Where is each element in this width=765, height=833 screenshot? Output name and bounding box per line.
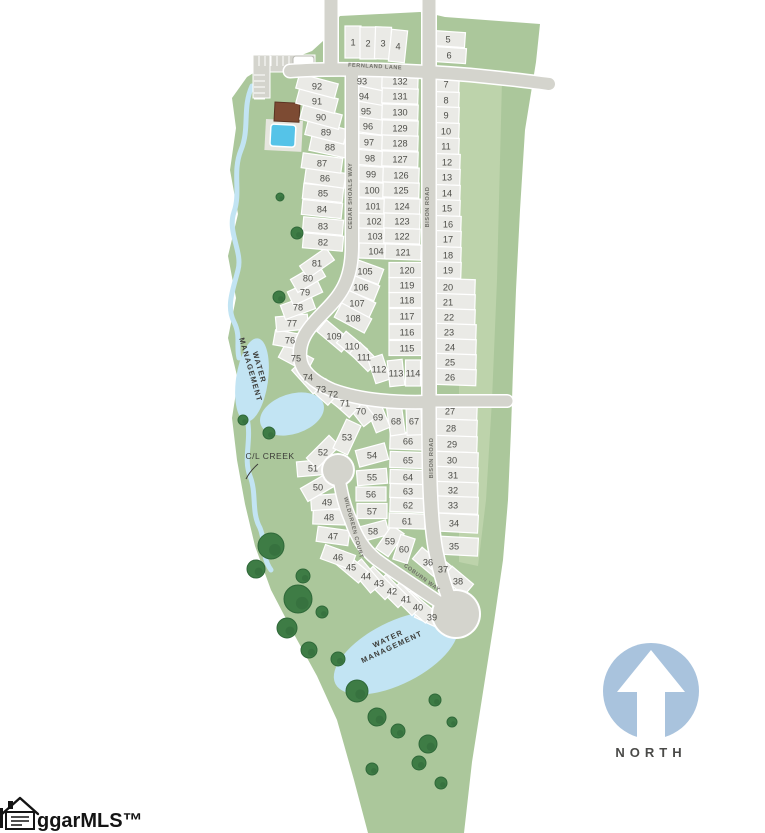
culdesac-2	[433, 591, 479, 637]
tree-icon	[284, 585, 312, 613]
lot-9-number: 9	[443, 110, 448, 120]
lot-57-number: 57	[367, 506, 377, 516]
lot-62-number: 62	[403, 500, 413, 510]
lot-64-number: 64	[403, 472, 413, 482]
tree-icon	[276, 193, 284, 201]
culdesac-1	[323, 455, 353, 485]
lot-17-number: 17	[443, 234, 453, 244]
tree-icon	[238, 415, 248, 425]
lot-20-number: 20	[443, 282, 453, 292]
lot-101-number: 101	[365, 201, 380, 211]
lot-15-number: 15	[442, 203, 452, 213]
lot-73-number: 73	[316, 384, 326, 394]
lot-92-number: 92	[312, 81, 322, 91]
lot-4-number: 4	[395, 41, 400, 51]
lot-52-number: 52	[318, 447, 328, 457]
lot-33-number: 33	[448, 500, 458, 510]
lot-44-number: 44	[361, 571, 371, 581]
lot-84-number: 84	[317, 204, 327, 214]
lot-67-number: 67	[409, 416, 419, 426]
street-label: BISON ROAD	[429, 438, 435, 479]
lot-48-number: 48	[324, 512, 334, 522]
lot-129-number: 129	[392, 123, 407, 133]
lot-12-number: 12	[442, 157, 452, 167]
lot-120-number: 120	[399, 265, 414, 275]
tree-icon	[368, 708, 386, 726]
lot-8-number: 8	[443, 95, 448, 105]
site-plan: 1234567891011121314151617181920212223242…	[0, 0, 765, 833]
lot-119-number: 119	[400, 280, 415, 290]
lot-94-number: 94	[359, 91, 369, 101]
lot-23-number: 23	[444, 327, 454, 337]
tree-icon	[391, 724, 405, 738]
lot-6-number: 6	[446, 50, 451, 60]
lot-99-number: 99	[366, 169, 376, 179]
lot-77-number: 77	[287, 318, 297, 328]
tree-icon	[419, 735, 437, 753]
lot-110-number: 110	[345, 341, 360, 351]
tree-icon	[301, 642, 317, 658]
lot-69-number: 69	[373, 412, 383, 422]
lot-115-number: 115	[400, 343, 415, 353]
lot-113-number: 113	[389, 368, 404, 378]
lot-122-number: 122	[394, 231, 409, 241]
tree-icon	[263, 427, 275, 439]
lot-108-number: 108	[345, 313, 360, 323]
lot-46-number: 46	[333, 552, 343, 562]
swimming-pool	[270, 124, 296, 147]
tree-icon	[291, 227, 303, 239]
creek-label: C/L CREEK	[245, 451, 294, 461]
lot-1-number: 1	[350, 37, 355, 47]
lot-95-number: 95	[361, 106, 371, 116]
lot-55-number: 55	[367, 472, 377, 482]
lot-37-number: 37	[438, 564, 448, 574]
lot-25-number: 25	[445, 357, 455, 367]
lot-5-number: 5	[445, 34, 450, 44]
lot-13-number: 13	[442, 172, 452, 182]
lot-24-number: 24	[445, 342, 455, 352]
lot-40-number: 40	[413, 602, 423, 612]
lot-127-number: 127	[392, 154, 407, 164]
lot-66-number: 66	[403, 436, 413, 446]
lot-121-number: 121	[395, 247, 410, 257]
lot-114-number: 114	[406, 368, 421, 378]
tree-icon	[429, 694, 441, 706]
lot-124-number: 124	[394, 201, 409, 211]
lot-42-number: 42	[387, 586, 397, 596]
lot-80-number: 80	[303, 273, 313, 283]
lot-34-number: 34	[449, 518, 459, 528]
tree-icon	[273, 291, 285, 303]
lot-71-number: 71	[340, 398, 350, 408]
lot-97-number: 97	[364, 137, 374, 147]
north-label: NORTH	[615, 745, 686, 760]
lot-65-number: 65	[403, 455, 413, 465]
tree-icon	[435, 777, 447, 789]
lot-59-number: 59	[385, 536, 395, 546]
tree-icon	[447, 717, 457, 727]
lot-3-number: 3	[380, 38, 385, 48]
lot-51-number: 51	[308, 463, 318, 473]
lot-107-number: 107	[349, 298, 364, 308]
lot-56-number: 56	[366, 489, 376, 499]
lot-41-number: 41	[401, 594, 411, 604]
lot-109-number: 109	[326, 331, 341, 341]
lot-36-number: 36	[423, 557, 433, 567]
lot-85-number: 85	[318, 188, 328, 198]
lot-11-number: 11	[441, 141, 451, 151]
logo-text: ggarMLS™	[37, 810, 143, 832]
lot-93-number: 93	[357, 76, 367, 86]
lot-49-number: 49	[322, 497, 332, 507]
lot-125-number: 125	[393, 185, 408, 195]
lot-87-number: 87	[317, 158, 327, 168]
lot-123-number: 123	[394, 216, 409, 226]
lot-89-number: 89	[321, 127, 331, 137]
lot-88-number: 88	[325, 142, 335, 152]
lot-60-number: 60	[399, 544, 409, 554]
tree-icon	[316, 606, 328, 618]
lot-79-number: 79	[300, 287, 310, 297]
tree-icon	[366, 763, 378, 775]
logo-edge-fragment	[0, 808, 3, 828]
map-layers: 1234567891011121314151617181920212223242…	[228, 0, 549, 833]
lot-98-number: 98	[365, 153, 375, 163]
lot-35-number: 35	[449, 541, 459, 551]
lot-18-number: 18	[443, 250, 453, 260]
lot-128-number: 128	[392, 138, 407, 148]
tree-icon	[258, 533, 284, 559]
street-label: BISON ROAD	[425, 187, 431, 228]
lot-76-number: 76	[285, 335, 295, 345]
lot-29-number: 29	[447, 439, 457, 449]
lot-53-number: 53	[342, 432, 352, 442]
lot-58-number: 58	[368, 526, 378, 536]
lot-63-number: 63	[403, 486, 413, 496]
lot-130-number: 130	[392, 107, 407, 117]
lot-7-number: 7	[443, 79, 448, 89]
tree-icon	[346, 680, 368, 702]
lot-43-number: 43	[374, 578, 384, 588]
lot-50-number: 50	[313, 482, 323, 492]
lot-78-number: 78	[293, 302, 303, 312]
site-plan-map: 1234567891011121314151617181920212223242…	[0, 0, 765, 833]
lot-126-number: 126	[393, 170, 408, 180]
lot-26-number: 26	[445, 372, 455, 382]
tree-icon	[277, 618, 297, 638]
lot-112-number: 112	[372, 364, 387, 374]
lot-116-number: 116	[400, 327, 415, 337]
lot-31-number: 31	[448, 470, 458, 480]
lot-54-number: 54	[367, 450, 377, 460]
lot-117-number: 117	[400, 311, 415, 321]
lot-30-number: 30	[447, 455, 457, 465]
lot-70-number: 70	[356, 406, 366, 416]
tree-icon	[247, 560, 265, 578]
lot-81-number: 81	[312, 258, 322, 268]
lot-104-number: 104	[368, 246, 383, 256]
lot-61-number: 61	[402, 516, 412, 526]
lot-45-number: 45	[346, 562, 356, 572]
lot-28-number: 28	[446, 423, 456, 433]
lot-105-number: 105	[357, 266, 372, 276]
lot-10-number: 10	[441, 126, 451, 136]
lot-86-number: 86	[320, 173, 330, 183]
lot-21-number: 21	[443, 297, 453, 307]
lot-82-number: 82	[318, 237, 328, 247]
lot-90-number: 90	[316, 112, 326, 122]
lot-111-number: 111	[357, 352, 371, 362]
lot-38-number: 38	[453, 576, 463, 586]
lot-16-number: 16	[443, 219, 453, 229]
lot-72-number: 72	[328, 389, 338, 399]
lot-74-number: 74	[303, 372, 313, 382]
lot-131-number: 131	[392, 91, 407, 101]
lot-83-number: 83	[318, 221, 328, 231]
lot-91-number: 91	[312, 96, 322, 106]
street-label: CEDAR SHOALS WAY	[348, 163, 354, 230]
lot-132-number: 132	[392, 76, 407, 86]
tree-icon	[331, 652, 345, 666]
lot-96-number: 96	[363, 121, 373, 131]
clubhouse-building	[274, 102, 300, 122]
lot-14-number: 14	[442, 188, 452, 198]
lot-27-number: 27	[445, 406, 455, 416]
tree-icon	[412, 756, 426, 770]
lot-2-number: 2	[365, 38, 370, 48]
lot-32-number: 32	[448, 485, 458, 495]
lot-102-number: 102	[366, 216, 381, 226]
parking-lot	[253, 55, 270, 98]
mls-logo: ggarMLS™	[0, 798, 143, 832]
lot-118-number: 118	[400, 295, 415, 305]
lot-47-number: 47	[328, 531, 338, 541]
lot-39-number: 39	[427, 612, 437, 622]
lot-22-number: 22	[444, 312, 454, 322]
tree-icon	[296, 569, 310, 583]
lot-19-number: 19	[443, 265, 453, 275]
north-indicator: NORTH	[603, 643, 699, 760]
lot-100-number: 100	[364, 185, 379, 195]
lot-68-number: 68	[391, 416, 401, 426]
lot-103-number: 103	[367, 231, 382, 241]
lot-106-number: 106	[353, 282, 368, 292]
lot-75-number: 75	[291, 353, 301, 363]
